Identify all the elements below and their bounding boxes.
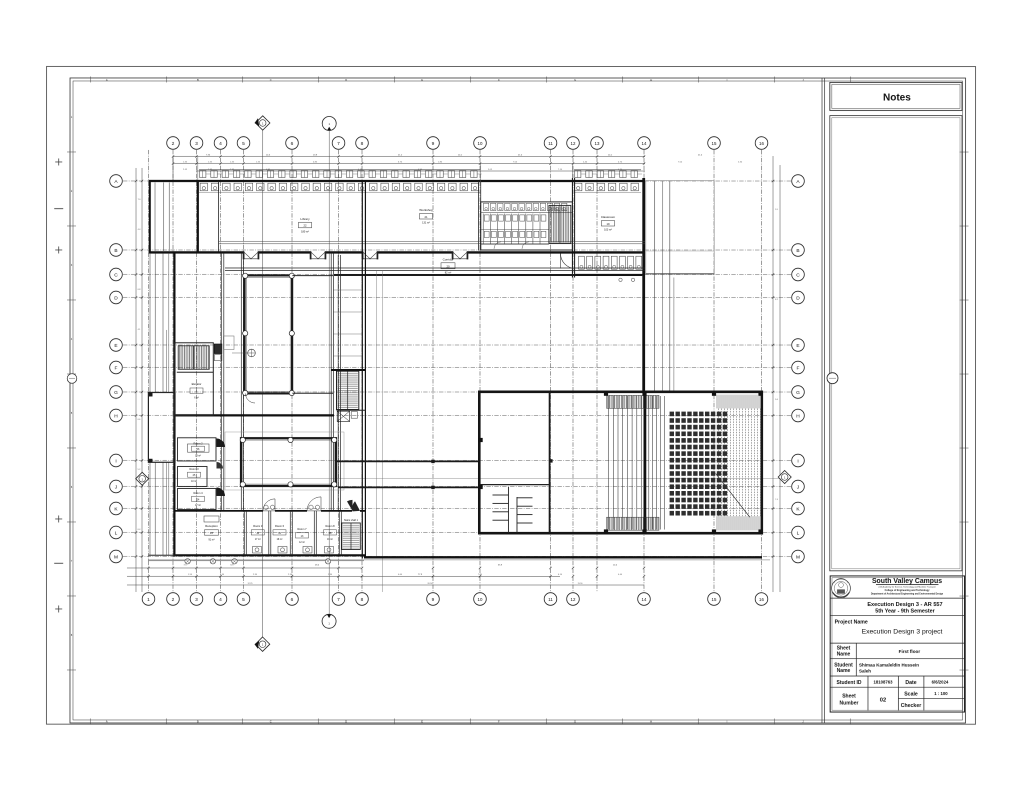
svg-text:I: I [797, 458, 798, 464]
svg-text:16 m²: 16 m² [277, 538, 283, 541]
svg-text:6/6/2024: 6/6/2024 [932, 680, 949, 685]
svg-text:Room 3: Room 3 [189, 467, 199, 471]
svg-text:Number: Number [840, 700, 859, 706]
svg-text:16 m²: 16 m² [327, 538, 333, 541]
svg-text:E: E [114, 343, 117, 349]
svg-text:6: 6 [291, 141, 294, 147]
svg-text:D: D [345, 720, 347, 724]
svg-text:180 m²: 180 m² [301, 230, 309, 233]
svg-text:14: 14 [642, 141, 647, 146]
svg-text:A: A [106, 720, 108, 724]
svg-text:B: B [197, 720, 199, 724]
svg-text:10: 10 [478, 141, 483, 146]
svg-text:L: L [797, 530, 800, 536]
svg-text:E: E [421, 78, 423, 82]
svg-text:2: 2 [172, 141, 175, 147]
svg-text:9: 9 [432, 141, 435, 147]
svg-text:Date: Date [905, 680, 916, 686]
svg-text:F: F [115, 365, 118, 371]
svg-text:4: 4 [219, 597, 222, 603]
svg-text:Room 7: Room 7 [297, 527, 307, 531]
svg-text:H: H [650, 720, 652, 724]
svg-text:F: F [797, 365, 800, 371]
svg-text:C: C [270, 720, 272, 724]
svg-text:5th Year - 9th Semester: 5th Year - 9th Semester [875, 609, 935, 615]
svg-text:G: G [114, 390, 118, 396]
svg-text:Execution Design 3 project: Execution Design 3 project [862, 629, 943, 636]
svg-text:17 m²: 17 m² [195, 504, 201, 507]
svg-text:14.0: 14.0 [613, 564, 618, 566]
svg-text:15: 15 [712, 597, 717, 602]
svg-text:131 m²: 131 m² [422, 222, 430, 225]
svg-text:3: 3 [195, 141, 198, 147]
svg-text:103 m²: 103 m² [604, 229, 612, 232]
svg-text:C: C [270, 78, 272, 82]
svg-text:Name: Name [837, 651, 851, 657]
svg-text:G: G [796, 390, 800, 396]
svg-text:Execution Design 3 - AR 557: Execution Design 3 - AR 557 [867, 602, 942, 608]
svg-text:M: M [114, 554, 118, 560]
svg-text:15: 15 [712, 141, 717, 146]
svg-text:17 m²: 17 m² [255, 538, 261, 541]
svg-text:D: D [345, 78, 347, 82]
svg-text:11: 11 [548, 597, 553, 602]
svg-text:12 m²: 12 m² [299, 541, 305, 544]
svg-text:9: 9 [432, 597, 435, 603]
svg-text:7: 7 [337, 597, 340, 603]
svg-text:5: 5 [242, 141, 245, 147]
svg-text:Room 8: Room 8 [325, 524, 335, 528]
svg-text:H: H [114, 413, 118, 419]
svg-text:B: B [796, 248, 799, 254]
svg-text:6: 6 [291, 597, 294, 603]
svg-text:13: 13 [595, 141, 600, 146]
svg-text:D: D [796, 295, 800, 301]
svg-text:College of Engineering and Tec: College of Engineering and Technology [885, 589, 931, 592]
svg-text:5: 5 [242, 597, 245, 603]
svg-text:Room 4: Room 4 [193, 491, 203, 495]
svg-text:South Valley Campus: South Valley Campus [872, 578, 942, 585]
svg-text:10: 10 [478, 597, 483, 602]
svg-text:6 m²: 6 m² [194, 397, 199, 400]
svg-text:D: D [114, 295, 118, 301]
svg-text:7: 7 [337, 141, 340, 147]
svg-text:16: 16 [759, 141, 764, 146]
svg-text:28.4: 28.4 [315, 564, 320, 566]
svg-text:1: 1 [147, 597, 150, 603]
svg-text:35.9: 35.9 [498, 564, 503, 566]
svg-text:E: E [796, 343, 799, 349]
svg-text:L: L [115, 530, 118, 536]
svg-text:Department of Architectural En: Department of Architectural Engineering … [871, 593, 944, 596]
svg-text:Name: Name [837, 668, 851, 674]
svg-text:B: B [114, 248, 117, 254]
svg-text:8: 8 [361, 141, 364, 147]
svg-text:Room 6: Room 6 [275, 524, 285, 528]
svg-text:I: I [115, 458, 116, 464]
svg-text:A: A [106, 78, 108, 82]
svg-text:Notes: Notes [883, 92, 911, 103]
svg-text:8: 8 [361, 597, 364, 603]
svg-text:Saleh: Saleh [859, 669, 871, 674]
svg-text:G: G [574, 78, 576, 82]
svg-text:18 m²: 18 m² [195, 454, 201, 457]
svg-text:10 m²: 10 m² [191, 480, 197, 483]
svg-text:Checker: Checker [901, 703, 921, 709]
svg-text:First floor: First floor [899, 649, 921, 654]
svg-text:Stairs shaft 1: Stairs shaft 1 [344, 519, 359, 522]
svg-text:C: C [796, 272, 800, 278]
svg-text:Room 2: Room 2 [193, 442, 203, 446]
svg-text:12: 12 [571, 597, 576, 602]
svg-text:Reception: Reception [205, 524, 218, 528]
svg-text:Sheet: Sheet [842, 694, 856, 700]
svg-text:H: H [650, 78, 652, 82]
svg-text:Corridor: Corridor [443, 257, 454, 261]
svg-text:H: H [796, 413, 800, 419]
svg-text:11: 11 [548, 141, 553, 146]
svg-text:4: 4 [219, 141, 222, 147]
svg-text:M: M [796, 554, 800, 560]
svg-text:Elevator: Elevator [192, 382, 202, 386]
svg-text:12: 12 [571, 141, 576, 146]
svg-text:E: E [421, 720, 423, 724]
svg-text:14: 14 [642, 597, 647, 602]
svg-text:C: C [114, 272, 118, 278]
svg-text:3: 3 [195, 597, 198, 603]
svg-text:1 : 100: 1 : 100 [934, 691, 948, 696]
svg-text:20.50: 20.50 [427, 583, 433, 585]
svg-text:2: 2 [172, 597, 175, 603]
svg-text:Shimaa Kamaleldin Hussein: Shimaa Kamaleldin Hussein [859, 663, 919, 668]
svg-text:82 m²: 82 m² [445, 271, 452, 274]
svg-text:12.25: 12.25 [247, 583, 253, 585]
svg-text:21: 21 [425, 215, 428, 219]
svg-text:Student ID: Student ID [836, 680, 861, 686]
svg-text:Scale: Scale [904, 691, 918, 697]
svg-text:Room 3: Room 3 [253, 524, 263, 528]
svg-text:91 m²: 91 m² [208, 539, 214, 542]
svg-text:G: G [574, 720, 576, 724]
svg-text:19: 19 [607, 222, 610, 226]
svg-text:B: B [197, 78, 199, 82]
svg-text:Project Name: Project Name [835, 619, 868, 625]
svg-text:Library: Library [300, 217, 310, 221]
svg-text:18108763: 18108763 [873, 680, 893, 685]
svg-text:22: 22 [304, 224, 307, 228]
svg-text:Classroom: Classroom [601, 215, 616, 219]
svg-text:16: 16 [759, 597, 764, 602]
svg-text:02: 02 [880, 698, 886, 704]
svg-text:Workshop: Workshop [419, 208, 433, 212]
